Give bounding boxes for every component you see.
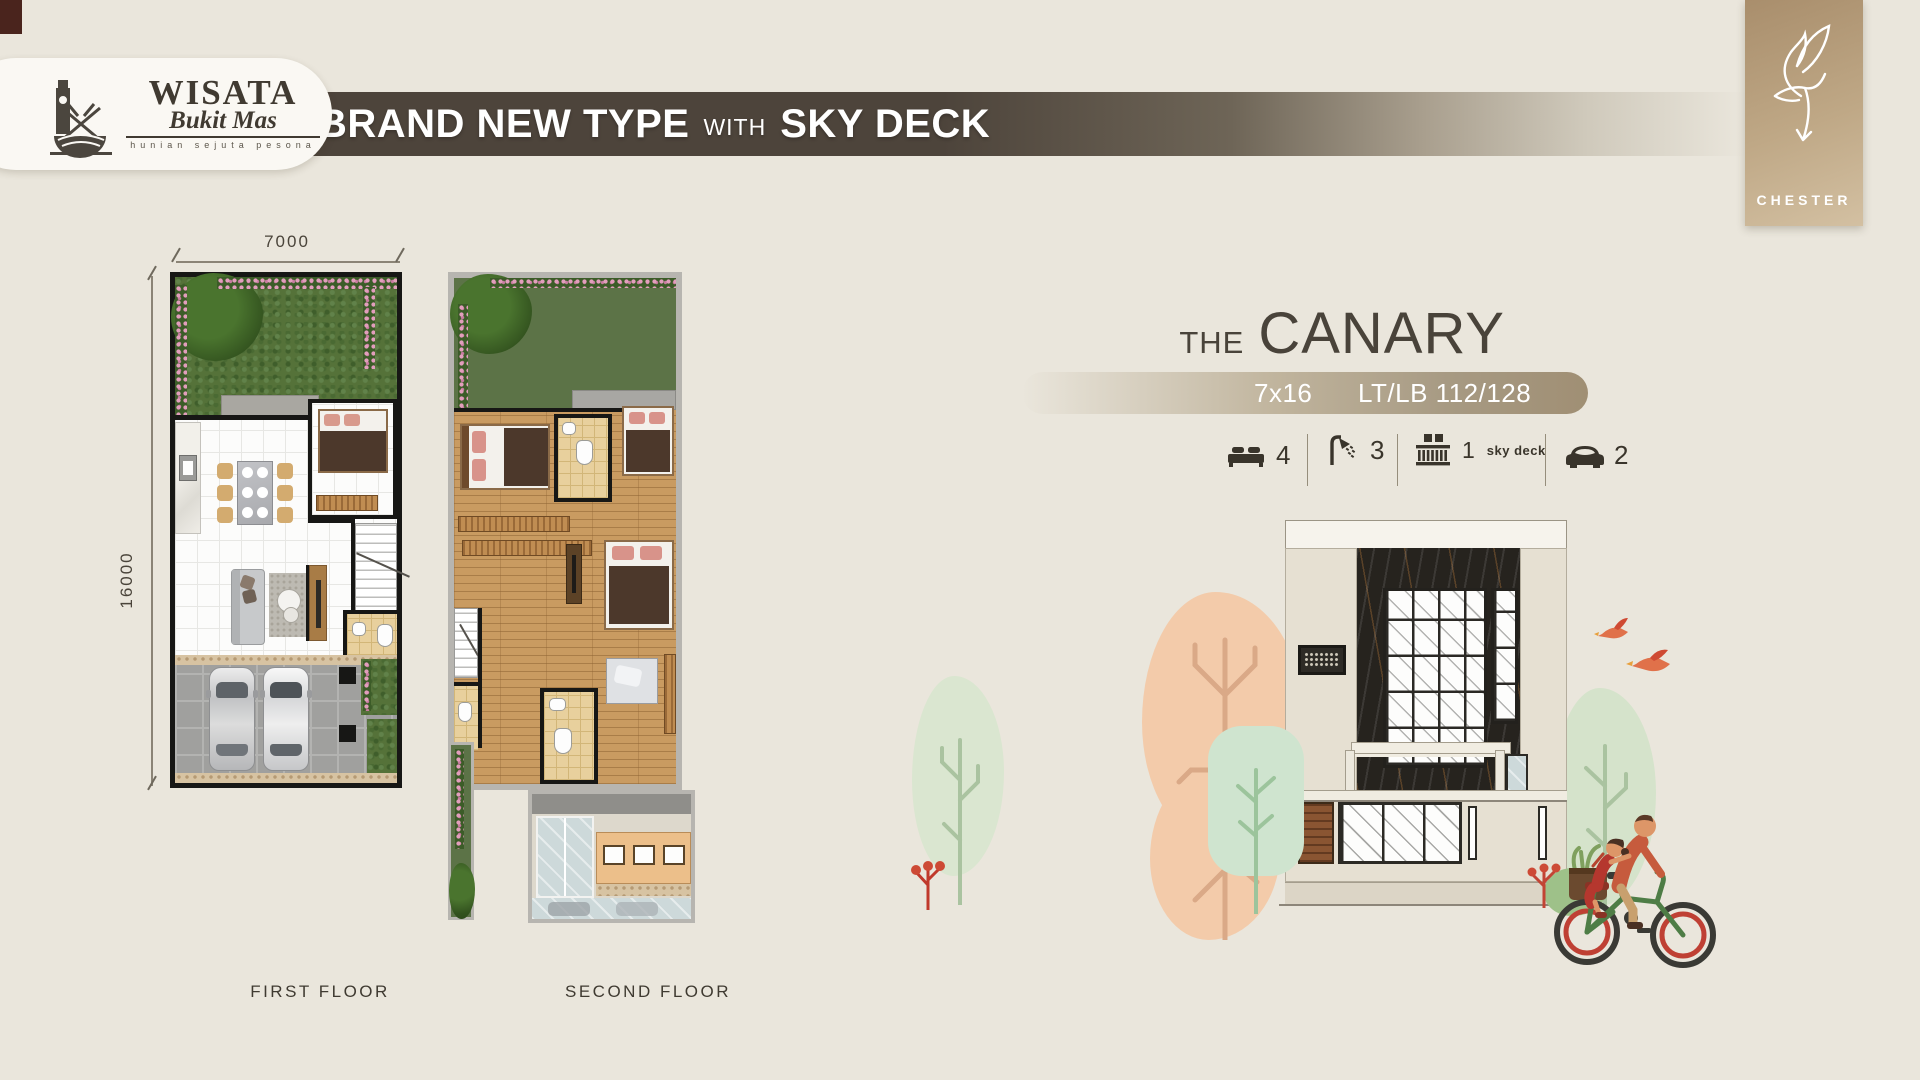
skydeck-count: 1 [1462, 437, 1475, 464]
floor-divider [1285, 790, 1567, 802]
dining-chair [277, 507, 293, 523]
skydeck-label: sky deck [1487, 443, 1546, 458]
product-title-name: CANARY [1258, 300, 1505, 367]
first-floor-garden [175, 277, 397, 417]
toilet [377, 624, 393, 647]
second-floor-plan [448, 272, 682, 790]
height-dimension: 16000 [117, 520, 137, 640]
main-window [1383, 588, 1487, 768]
toilet [458, 702, 472, 722]
feature-bathrooms: 3 [1328, 434, 1384, 466]
sink [352, 622, 366, 636]
dining-chair [277, 463, 293, 479]
width-dimension-line [176, 261, 400, 263]
second-floor-bathroom-1 [554, 414, 612, 502]
slot-window [1468, 806, 1477, 860]
bathroom-count: 3 [1370, 435, 1384, 466]
carport-glass-roof [532, 898, 691, 919]
banner-headline: BRAND NEW TYPE WITH SKY DECK [318, 92, 990, 156]
wardrobe [664, 654, 676, 734]
planter-box [339, 725, 356, 742]
car-under-glass [616, 902, 658, 916]
product-title-prefix: THE [1179, 325, 1244, 361]
car [263, 667, 309, 771]
rug [269, 573, 311, 637]
deck-wall [596, 832, 691, 884]
specs-bar: 7x16 LT/LB 112/128 [1022, 372, 1588, 414]
canary-bird-icon [1745, 0, 1863, 170]
lt-lb-area: LT/LB 112/128 [1358, 378, 1531, 409]
toilet [554, 728, 572, 754]
staircase [454, 608, 478, 678]
logo-tagline: hunian sejuta pesona [118, 140, 328, 150]
wardrobe [458, 516, 570, 532]
dining-table [237, 461, 273, 525]
brochure-page: BRAND NEW TYPE WITH SKY DECK WISATA Buki… [0, 0, 1920, 1080]
feature-skydeck: 1 sky deck [1416, 434, 1546, 466]
second-floor-garden-view [454, 278, 676, 410]
parapet [1285, 520, 1567, 548]
bed-icon [1228, 445, 1264, 467]
balcony-post [1495, 750, 1505, 794]
skydeck-icon [1416, 434, 1450, 466]
garden-path [221, 395, 319, 417]
shower-icon [1328, 434, 1356, 466]
first-floor-plan [170, 272, 402, 788]
first-floor-bedroom [308, 399, 397, 519]
tv-console [309, 565, 327, 641]
chester-brand-card: CHESTER [1745, 0, 1863, 226]
bedroom-3-bed [622, 406, 674, 476]
side-garden-strip [448, 742, 474, 920]
kitchen-counter [175, 422, 201, 534]
sink [549, 698, 566, 711]
staircase [355, 523, 397, 617]
bedroom-count: 4 [1276, 440, 1290, 471]
second-floor-label: SECOND FLOOR [548, 982, 748, 1002]
feature-bedrooms: 4 [1228, 440, 1290, 471]
vent-grille [1298, 645, 1346, 675]
master-console [566, 544, 582, 604]
car-under-glass [548, 902, 590, 916]
toilet [576, 440, 593, 465]
master-bed [604, 540, 674, 630]
planter-box [339, 667, 356, 684]
sofa [231, 569, 265, 645]
first-floor-label: FIRST FLOOR [220, 982, 420, 1002]
logo-rule [126, 136, 320, 138]
red-plant [908, 840, 948, 910]
banner-headline-bold1: BRAND NEW TYPE [318, 102, 689, 147]
bird-icon [1626, 644, 1678, 682]
product-title: THE CANARY [1000, 300, 1505, 367]
dining-chair [277, 485, 293, 501]
family-bicycle [1545, 790, 1725, 970]
dining-chair [217, 463, 233, 479]
tv [316, 580, 321, 628]
sky-deck-section [528, 790, 695, 923]
kitchen-sink [179, 455, 197, 481]
corner-mark [0, 0, 22, 34]
windmill-clocktower-icon [48, 74, 114, 165]
banner-headline-small: WITH [703, 108, 766, 141]
second-floor-bathroom-3 [540, 688, 598, 784]
carport-hedge [367, 719, 397, 773]
height-dimension-line [151, 276, 153, 786]
glass-sliding-doors [1338, 802, 1462, 864]
car-icon [1566, 444, 1604, 468]
second-floor-bathroom-2 [454, 682, 478, 750]
car [209, 667, 255, 771]
balcony-railing [1352, 754, 1498, 792]
chester-label: CHESTER [1745, 192, 1863, 208]
carport-hedge [361, 659, 397, 715]
sink [562, 422, 576, 435]
deck-glass-panel [536, 816, 594, 898]
feature-carport: 2 [1566, 440, 1628, 471]
window-sill [1351, 742, 1511, 754]
width-dimension: 7000 [227, 232, 347, 252]
mint-tree-branches [1224, 746, 1288, 914]
banner-headline-bold2: SKY DECK [780, 102, 990, 147]
first-floor-bathroom [343, 610, 397, 655]
bed [318, 409, 388, 473]
side-window [1491, 588, 1518, 724]
developer-logo-text: WISATA Bukit Mas hunian sejuta pesona [118, 76, 328, 150]
bedroom-2-bed [460, 424, 550, 490]
dining-chair [217, 507, 233, 523]
daybed [606, 658, 658, 704]
dining-chair [217, 485, 233, 501]
balcony-post [1345, 750, 1355, 794]
carport-count: 2 [1614, 440, 1628, 471]
lot-size: 7x16 [1254, 378, 1312, 409]
carport [175, 655, 397, 783]
wardrobe [316, 495, 378, 511]
logo-title: WISATA [118, 76, 328, 110]
